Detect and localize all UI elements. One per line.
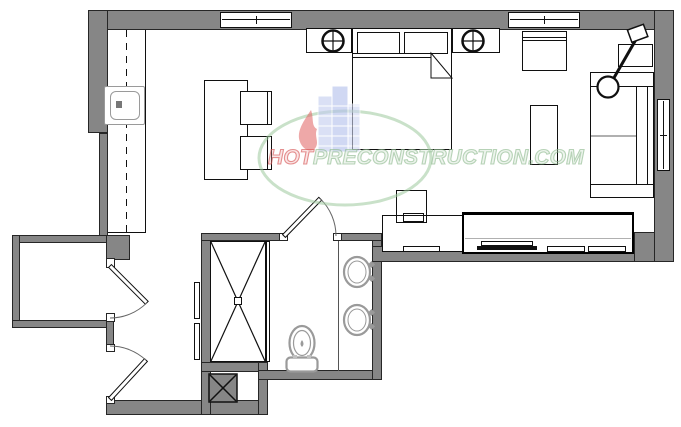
wall-closet-left (12, 235, 20, 328)
laundry-shaft-square (209, 374, 237, 402)
sofa-cushion-divider (591, 135, 636, 137)
wall-closet-bottom (12, 320, 108, 328)
desk-chair-seat (403, 213, 424, 222)
closet-swing-door (109, 265, 149, 318)
wall-bathroom-bottom (258, 370, 382, 380)
pillow (357, 32, 400, 54)
sliding-panel (194, 282, 200, 319)
side-table (618, 44, 653, 67)
watermark-brand-suffix: PRECONSTRUCTION.COM (313, 146, 584, 169)
vanity-counter-edge (338, 241, 339, 371)
sofa-armrest-line (590, 184, 654, 185)
upper-cabinet-dash-line (126, 30, 127, 233)
shower-stall (210, 241, 266, 362)
door-jamb (279, 233, 288, 241)
door-jamb (106, 313, 115, 322)
wall-entry-bottom (106, 400, 268, 415)
bathroom-swing-door (283, 197, 336, 237)
sofa-back-line (647, 86, 648, 185)
wall-stub-between-doors (106, 320, 114, 346)
media-device (588, 246, 626, 252)
blanket-edge (352, 53, 431, 54)
nightstand-right (452, 28, 500, 53)
kitchen-counter-end (108, 232, 146, 233)
watermark-brand-prefix: HOT (268, 146, 313, 169)
watermark-text: HOTPRECONSTRUCTION.COM (268, 146, 584, 170)
sofa-armrest-line (590, 86, 654, 87)
door-jamb (106, 344, 115, 352)
kitchen-sink-basin (110, 91, 140, 120)
wall-top (88, 10, 674, 30)
sofa-back-line (636, 86, 637, 185)
wall-kitchen-end-block (106, 235, 130, 260)
kitchen-counter-edge (145, 30, 146, 233)
door-jamb (333, 233, 342, 241)
floor-plan: HOTPRECONSTRUCTION.COM (0, 0, 681, 427)
media-device (547, 246, 585, 252)
keyboard (403, 246, 440, 252)
nightstand-left (306, 28, 352, 53)
armchair-back-line (523, 37, 566, 38)
wall-bathroom-top-west (201, 233, 281, 241)
wall-left-lower (99, 133, 108, 236)
window-top-right (508, 12, 580, 28)
entry-swing-door (109, 346, 148, 400)
sliding-panel (194, 323, 200, 360)
blanket-edge (352, 57, 431, 58)
tv-base (477, 246, 537, 250)
console-shelf-line (465, 238, 631, 239)
kitchen-faucet (116, 101, 122, 108)
shower-glass-door (266, 241, 270, 362)
armchair-back-line (523, 40, 566, 41)
door-jamb (106, 396, 115, 404)
wall-closet-top (12, 235, 107, 243)
door-jamb (106, 258, 115, 268)
toilet (287, 326, 318, 372)
pillow (404, 32, 448, 54)
wall-bathroom-top-east (340, 233, 382, 241)
basin-sink (344, 257, 375, 287)
watermark-flame-icon (299, 110, 317, 151)
window-right-wall (657, 99, 670, 171)
window-top-left (220, 12, 292, 28)
dining-chair-back (267, 92, 268, 124)
basin-sink (344, 305, 375, 335)
